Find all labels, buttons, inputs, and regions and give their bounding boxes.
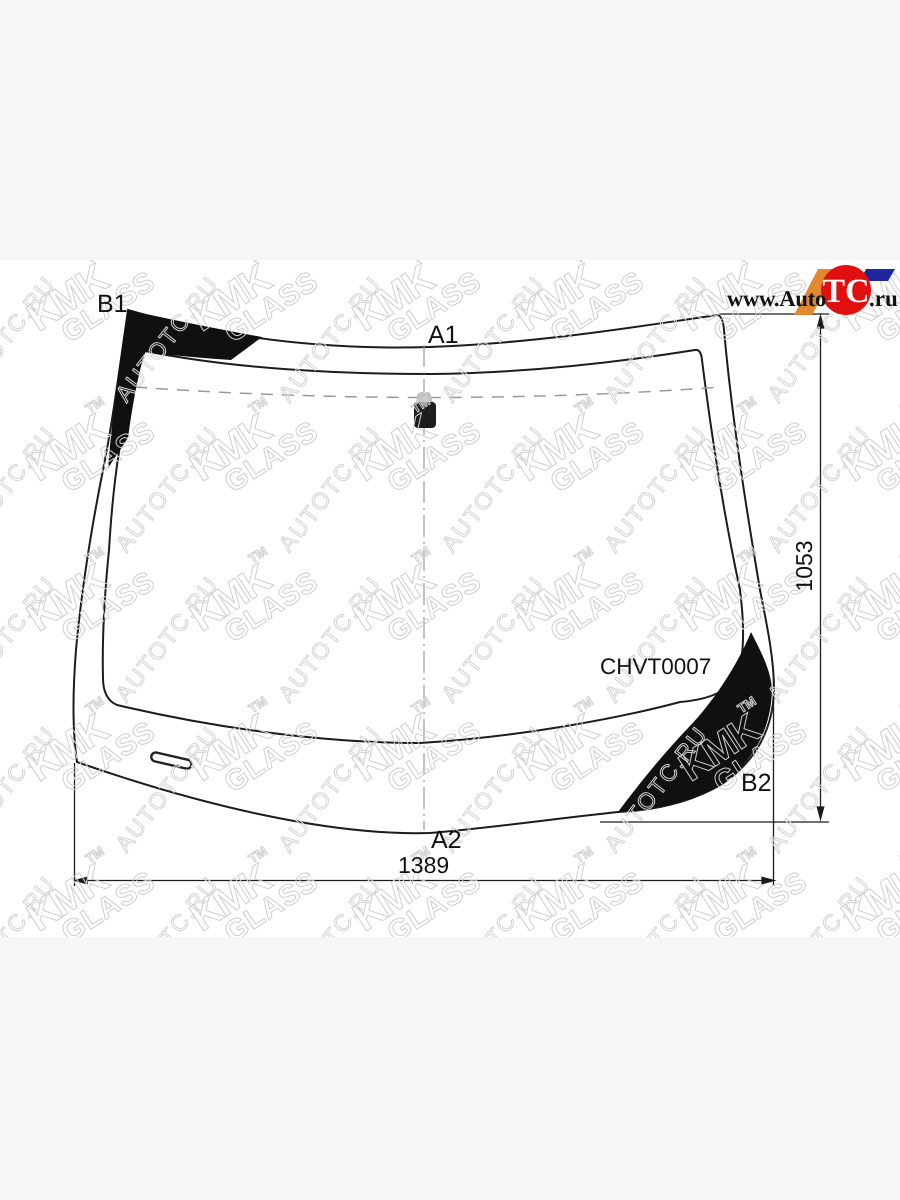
svg-text:TC: TC — [822, 273, 869, 310]
svg-text:www.Auto: www.Auto — [727, 286, 826, 311]
svg-text:A1: A1 — [428, 321, 459, 349]
svg-text:1053: 1053 — [791, 540, 817, 591]
svg-text:CHVT0007: CHVT0007 — [600, 654, 711, 679]
svg-text:B2: B2 — [741, 769, 772, 797]
svg-text:.ru: .ru — [869, 286, 898, 311]
svg-text:1389: 1389 — [398, 852, 449, 878]
svg-text:B1: B1 — [97, 290, 128, 318]
svg-text:A2: A2 — [431, 826, 462, 854]
